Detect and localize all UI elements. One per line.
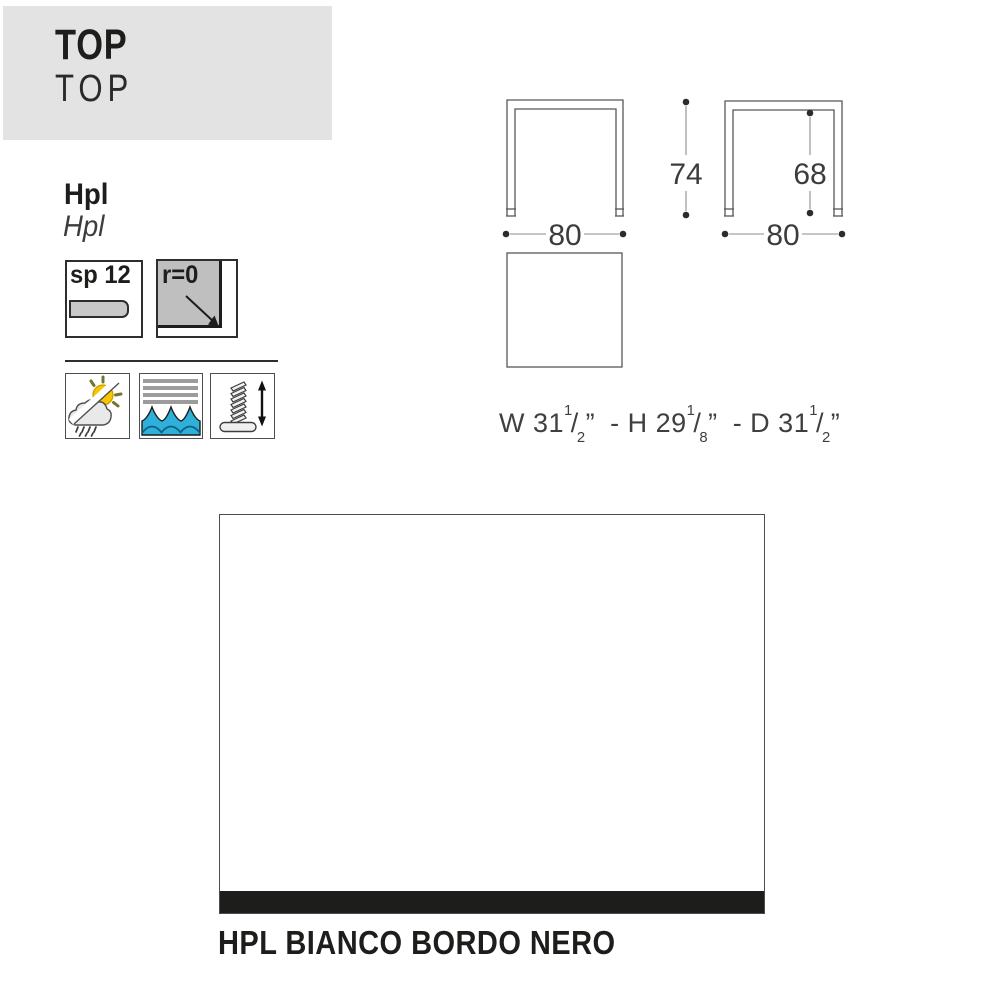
washable-waves-icon [139, 373, 203, 439]
front-width-dimension: 80 [503, 219, 627, 252]
top-view-outline [507, 253, 622, 367]
material-name: Hpl [64, 180, 108, 210]
radius-spec-box: r=0 [156, 259, 238, 338]
technical-drawing: 74 68 80 80 [490, 85, 860, 377]
imperial-dimensions: W 311/2” - H 291/8” - D 311/2” [499, 408, 840, 442]
side-width-dimension: 80 [722, 219, 846, 252]
thickness-label: sp 12 [70, 262, 131, 290]
underframe-height-dimension: 68 [793, 110, 826, 217]
svg-text:74: 74 [669, 158, 702, 191]
header-banner [3, 6, 332, 140]
divider-line [65, 360, 278, 362]
page-title: TOP [55, 24, 128, 67]
product-spec-sheet: TOP TOP Hpl Hpl sp 12 r=0 [0, 0, 1000, 1000]
adjustable-glide-icon [210, 373, 275, 439]
outdoor-weather-icon [65, 373, 130, 439]
front-view-outline [506, 100, 624, 216]
thickness-spec-box: sp 12 [65, 260, 143, 338]
finish-swatch [219, 514, 765, 914]
material-name-alt: Hpl [63, 212, 104, 242]
radius-label: r=0 [162, 262, 198, 290]
svg-text:68: 68 [793, 158, 826, 191]
finish-caption: HPL BIANCO BORDO NERO [218, 924, 616, 962]
height-dimension: 74 [669, 99, 702, 219]
page-subtitle: TOP [55, 70, 133, 108]
svg-text:80: 80 [766, 219, 799, 252]
black-edge-band [220, 891, 764, 913]
svg-text:80: 80 [548, 219, 581, 252]
slab-thickness-icon [69, 300, 129, 318]
